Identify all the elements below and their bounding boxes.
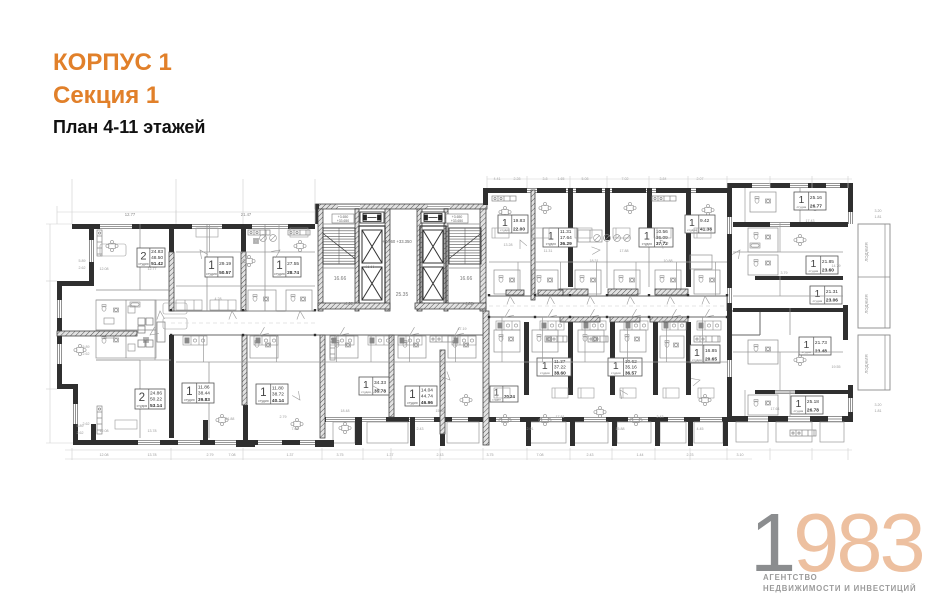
svg-text:1: 1 bbox=[363, 380, 369, 391]
svg-text:1.81: 1.81 bbox=[875, 409, 882, 413]
svg-text:1: 1 bbox=[810, 259, 816, 270]
svg-text:18.48: 18.48 bbox=[341, 409, 350, 413]
svg-text:7.08: 7.08 bbox=[537, 453, 544, 457]
svg-text:48.50: 48.50 bbox=[151, 255, 163, 261]
svg-text:студия: студия bbox=[692, 358, 702, 362]
svg-text:1: 1 bbox=[689, 218, 695, 229]
svg-text:17.64: 17.64 bbox=[771, 407, 780, 411]
svg-text:17.43: 17.43 bbox=[806, 219, 815, 223]
svg-text:17.64: 17.64 bbox=[560, 235, 572, 241]
svg-text:46.96: 46.96 bbox=[421, 400, 433, 406]
svg-text:37.22: 37.22 bbox=[554, 365, 566, 371]
svg-text:50.22: 50.22 bbox=[150, 397, 162, 403]
svg-text:3.20: 3.20 bbox=[875, 403, 882, 407]
svg-text:студия: студия bbox=[274, 272, 285, 276]
svg-text:53.14: 53.14 bbox=[150, 403, 162, 409]
svg-text:16.85: 16.85 bbox=[705, 348, 717, 354]
svg-text:2.43: 2.43 bbox=[657, 415, 664, 419]
svg-text:5.89: 5.89 bbox=[83, 345, 90, 349]
svg-text:19.83: 19.83 bbox=[513, 218, 525, 224]
svg-text:23.06: 23.06 bbox=[826, 298, 838, 304]
svg-text:+33.650: +33.650 bbox=[337, 219, 349, 223]
svg-text:1: 1 bbox=[613, 361, 619, 372]
svg-text:студия: студия bbox=[137, 404, 148, 408]
svg-text:16.66: 16.66 bbox=[366, 265, 375, 269]
svg-text:5.89: 5.89 bbox=[79, 259, 86, 263]
svg-text:11.31: 11.31 bbox=[560, 229, 572, 235]
svg-text:2: 2 bbox=[140, 250, 146, 262]
svg-text:1: 1 bbox=[644, 230, 650, 242]
svg-text:38.60: 38.60 bbox=[554, 370, 566, 376]
svg-text:1: 1 bbox=[795, 399, 801, 410]
svg-text:2.62: 2.62 bbox=[77, 431, 84, 435]
svg-text:25.35: 25.35 bbox=[396, 292, 409, 298]
svg-text:11.88: 11.88 bbox=[226, 417, 235, 421]
svg-text:1.81: 1.81 bbox=[875, 215, 882, 219]
svg-text:36.29: 36.29 bbox=[560, 241, 572, 247]
svg-text:студия: студия bbox=[611, 371, 621, 375]
svg-text:2.79: 2.79 bbox=[207, 453, 214, 457]
svg-text:11.31: 11.31 bbox=[544, 249, 553, 253]
svg-text:12.77: 12.77 bbox=[148, 267, 157, 271]
svg-text:2.62: 2.62 bbox=[83, 352, 90, 356]
svg-text:студия: студия bbox=[492, 398, 501, 401]
svg-text:2.43: 2.43 bbox=[417, 427, 424, 431]
svg-text:3.10: 3.10 bbox=[737, 453, 744, 457]
svg-text:18.31: 18.31 bbox=[590, 259, 599, 263]
svg-text:студия: студия bbox=[540, 371, 550, 375]
svg-text:студия: студия bbox=[258, 399, 269, 403]
svg-text:ЛОДЖИЯ: ЛОДЖИЯ bbox=[864, 242, 869, 261]
svg-text:2.62: 2.62 bbox=[79, 266, 86, 270]
svg-text:+7.460 +33.350: +7.460 +33.350 bbox=[382, 239, 412, 244]
svg-text:39.83: 39.83 bbox=[198, 397, 210, 403]
svg-text:студия: студия bbox=[642, 242, 652, 246]
svg-text:1: 1 bbox=[798, 195, 804, 206]
svg-text:+33.650: +33.650 bbox=[451, 219, 463, 223]
svg-text:11.86: 11.86 bbox=[198, 384, 210, 390]
svg-text:студия: студия bbox=[546, 242, 556, 246]
svg-text:7.08: 7.08 bbox=[292, 427, 299, 431]
svg-text:12.08: 12.08 bbox=[100, 429, 109, 433]
svg-text:17.88: 17.88 bbox=[620, 249, 629, 253]
svg-text:4.45: 4.45 bbox=[697, 427, 704, 431]
svg-text:35.16: 35.16 bbox=[625, 365, 637, 371]
svg-text:21.47: 21.47 bbox=[241, 212, 252, 217]
svg-text:студия: студия bbox=[813, 299, 823, 303]
svg-text:студия: студия bbox=[206, 272, 217, 276]
svg-text:4.62: 4.62 bbox=[345, 301, 354, 306]
svg-text:20.65: 20.65 bbox=[705, 357, 717, 363]
svg-text:10.88: 10.88 bbox=[664, 259, 673, 263]
svg-text:12.08: 12.08 bbox=[100, 453, 109, 457]
svg-text:25.16: 25.16 bbox=[810, 195, 822, 201]
svg-text:3.75: 3.75 bbox=[487, 453, 494, 457]
svg-text:студия: студия bbox=[687, 228, 697, 232]
svg-text:1: 1 bbox=[409, 388, 415, 401]
svg-text:26.78: 26.78 bbox=[807, 408, 819, 414]
svg-text:10.56: 10.56 bbox=[656, 229, 668, 235]
svg-text:1: 1 bbox=[208, 259, 214, 272]
svg-text:1: 1 bbox=[548, 230, 554, 242]
svg-text:1.44: 1.44 bbox=[637, 453, 644, 457]
svg-text:13.28: 13.28 bbox=[504, 243, 513, 247]
svg-text:1: 1 bbox=[814, 289, 820, 300]
svg-text:студия: студия bbox=[797, 205, 807, 209]
svg-text:студия: студия bbox=[500, 228, 510, 232]
svg-text:41.38: 41.38 bbox=[700, 227, 712, 233]
svg-text:40.14: 40.14 bbox=[272, 398, 284, 404]
svg-text:2.43: 2.43 bbox=[587, 453, 594, 457]
svg-text:27.55: 27.55 bbox=[287, 261, 299, 267]
svg-text:ЛОДЖИЯ: ЛОДЖИЯ bbox=[864, 354, 869, 373]
svg-text:3.75: 3.75 bbox=[337, 453, 344, 457]
svg-text:1.37: 1.37 bbox=[387, 453, 394, 457]
svg-text:2.91: 2.91 bbox=[527, 427, 534, 431]
svg-text:7.08: 7.08 bbox=[229, 453, 236, 457]
svg-text:12.77: 12.77 bbox=[125, 212, 136, 217]
svg-text:2: 2 bbox=[139, 391, 145, 404]
svg-text:1: 1 bbox=[186, 385, 192, 398]
svg-text:15.88: 15.88 bbox=[616, 427, 625, 431]
svg-text:студия: студия bbox=[361, 390, 371, 394]
svg-text:44.74: 44.74 bbox=[421, 394, 433, 400]
svg-text:28.74: 28.74 bbox=[287, 270, 299, 276]
svg-text:12.08: 12.08 bbox=[100, 267, 109, 271]
svg-text:9.42: 9.42 bbox=[700, 218, 710, 224]
svg-text:1: 1 bbox=[502, 218, 508, 229]
svg-text:11.80: 11.80 bbox=[272, 385, 284, 391]
svg-text:1.37: 1.37 bbox=[287, 453, 294, 457]
svg-text:1: 1 bbox=[494, 388, 499, 398]
svg-text:2.62: 2.62 bbox=[83, 422, 90, 426]
svg-text:1: 1 bbox=[542, 361, 548, 372]
svg-text:21.31: 21.31 bbox=[826, 289, 838, 295]
svg-text:23.60: 23.60 bbox=[822, 268, 834, 274]
svg-text:22.00: 22.00 bbox=[513, 227, 525, 233]
svg-text:13.78: 13.78 bbox=[148, 453, 157, 457]
svg-text:студия: студия bbox=[184, 398, 195, 402]
svg-text:3.79: 3.79 bbox=[781, 271, 788, 275]
svg-text:14.04: 14.04 bbox=[421, 387, 433, 393]
svg-text:1: 1 bbox=[276, 259, 282, 272]
svg-text:студия: студия bbox=[794, 409, 804, 413]
svg-text:15.88: 15.88 bbox=[436, 409, 445, 413]
svg-text:36.57: 36.57 bbox=[625, 370, 637, 376]
svg-text:25.18: 25.18 bbox=[807, 399, 819, 405]
svg-text:1: 1 bbox=[803, 340, 809, 351]
svg-text:29.19: 29.19 bbox=[219, 261, 231, 267]
svg-text:студия: студия bbox=[809, 269, 819, 273]
svg-text:19.55: 19.55 bbox=[832, 365, 841, 369]
svg-text:1: 1 bbox=[694, 348, 700, 359]
svg-text:47.19: 47.19 bbox=[458, 327, 467, 331]
svg-text:4.28: 4.28 bbox=[215, 297, 222, 301]
svg-text:26.77: 26.77 bbox=[810, 204, 822, 210]
svg-text:3.20: 3.20 bbox=[875, 209, 882, 213]
svg-text:50.57: 50.57 bbox=[219, 270, 231, 276]
svg-text:23.48: 23.48 bbox=[815, 349, 827, 355]
svg-text:студия: студия bbox=[407, 401, 418, 405]
svg-text:студия: студия bbox=[138, 262, 148, 266]
svg-text:38.44: 38.44 bbox=[198, 391, 210, 397]
svg-text:34.33: 34.33 bbox=[374, 380, 386, 386]
svg-text:14.79: 14.79 bbox=[832, 264, 841, 268]
svg-text:1: 1 bbox=[260, 386, 266, 399]
svg-text:ЛОДЖИЯ: ЛОДЖИЯ bbox=[864, 294, 869, 313]
svg-text:38.72: 38.72 bbox=[272, 392, 284, 398]
svg-text:16.66: 16.66 bbox=[460, 276, 473, 282]
svg-text:4.62: 4.62 bbox=[465, 301, 474, 306]
svg-text:13.78: 13.78 bbox=[148, 429, 157, 433]
svg-text:24.83: 24.83 bbox=[151, 249, 163, 255]
svg-text:21.73: 21.73 bbox=[815, 340, 827, 346]
svg-text:24.86: 24.86 bbox=[150, 390, 162, 396]
svg-text:17.81: 17.81 bbox=[556, 415, 565, 419]
svg-text:16.66: 16.66 bbox=[334, 276, 347, 282]
svg-text:2.79: 2.79 bbox=[280, 415, 287, 419]
